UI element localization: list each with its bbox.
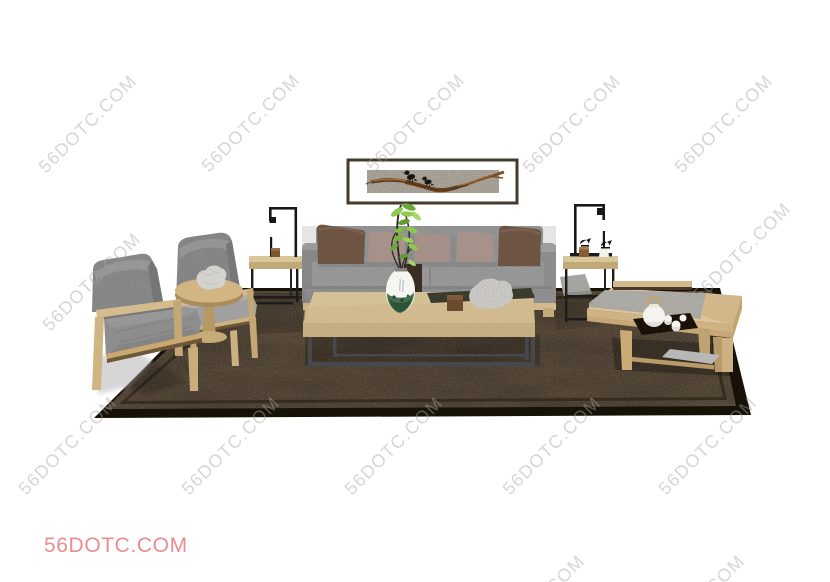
svg-text:56DOTC.COM: 56DOTC.COM xyxy=(44,534,188,557)
